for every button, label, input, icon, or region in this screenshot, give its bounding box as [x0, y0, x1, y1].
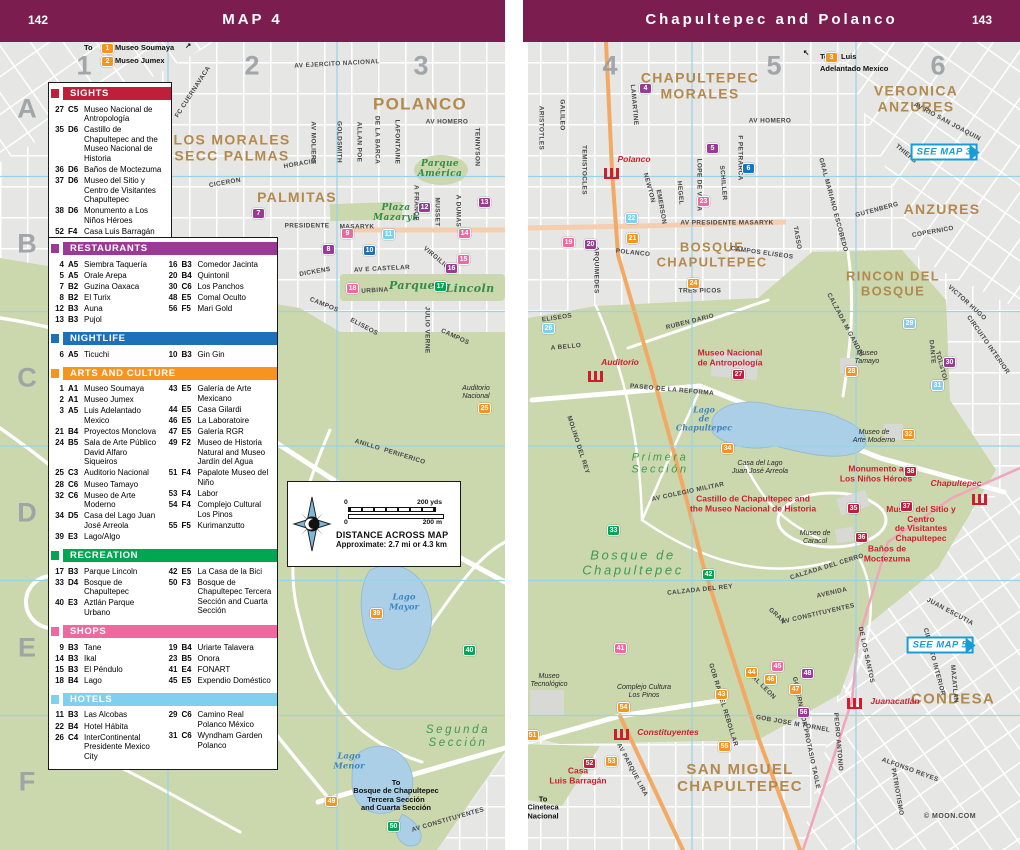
- see-map-link: SEE MAP 5: [907, 637, 974, 654]
- street-label: ALFONSO REYES: [881, 756, 940, 783]
- legend-sights-box: SIGHTS27C5Museo Nacional de Antropología…: [48, 82, 172, 245]
- scale-approx: Approximate: 2.7 mi or 4.3 km: [336, 540, 456, 549]
- legend-item: 18B4Lago: [51, 676, 161, 686]
- park-label: Parque América: [418, 159, 463, 179]
- street-label: LAMARTINE: [629, 84, 640, 126]
- legend-item: 33D4Bosque de Chapultepec: [51, 578, 161, 597]
- legend-main-box: RESTAURANTS4A5Siembra Taquería5A5Orale A…: [48, 237, 278, 770]
- poi-marker-28: 28: [845, 366, 858, 377]
- street-label: PASEO DE LA REFORMA: [630, 383, 715, 397]
- street-label: PATRIOTISMO: [889, 768, 904, 816]
- street-label: ELISEOS: [349, 317, 379, 338]
- poi-marker-19: 19: [562, 237, 575, 248]
- metro-station-icon: [847, 698, 862, 709]
- sight-label: Monumento a Los Niños Héroes: [840, 464, 912, 483]
- street-label: A DUMAS: [454, 195, 461, 227]
- poi-marker-17: 17: [434, 281, 447, 292]
- scale-zero-yd: 0: [344, 499, 348, 506]
- neighborhood-label: RINCON DEL BOSQUE: [846, 269, 940, 298]
- legend-section-header-sight: SIGHTS: [63, 87, 171, 100]
- park-section-label: Bosque de Chapultepec: [582, 548, 684, 577]
- metro-station-icon: [604, 168, 619, 179]
- poi-marker-21: 21: [626, 233, 639, 244]
- legend-item: 24B5Sala de Arte Público David Alfaro Si…: [51, 438, 161, 467]
- poi-marker-44: 44: [745, 667, 758, 678]
- scale-zero-m: 0: [344, 519, 348, 526]
- poi-marker-16: 16: [445, 263, 458, 274]
- page-number-right: 143: [972, 13, 992, 27]
- street-label: EMERSON: [654, 189, 667, 225]
- legend-item: 25C3Auditorio Nacional: [51, 468, 161, 478]
- neighborhood-label: CONDESA: [911, 692, 995, 709]
- map-note: Museo Soumaya: [115, 44, 174, 52]
- legend-item: 1A1Museo Soumaya: [51, 384, 161, 394]
- legend-item: 53F4Labor: [165, 489, 275, 499]
- street-label: AV CONSTITUYENTES: [411, 806, 485, 834]
- street-label: AV HOMERO: [749, 117, 792, 124]
- street-label: LAFONTAINE: [393, 120, 400, 165]
- park-label: Lincoln: [446, 283, 495, 295]
- copyright-label: © MOON.COM: [924, 813, 976, 821]
- park-label: Parque: [389, 280, 435, 292]
- street-label: VICTOR HUGO: [946, 284, 987, 322]
- poi-marker-23: 23: [697, 196, 710, 207]
- poi-marker-50: 50: [387, 821, 400, 832]
- legend-item: 40E3Aztlán Parque Urbano: [51, 598, 161, 617]
- poi-marker-55: 55: [718, 741, 731, 752]
- street-label: HORACIO: [283, 158, 317, 171]
- street-label: HEGEL: [675, 181, 684, 206]
- legend-section-header-shop: SHOPS: [63, 625, 277, 638]
- museum-label: Museo de Arte Moderno: [853, 429, 895, 445]
- legend-item: 54F4Complejo Cultural Los Pinos: [165, 500, 275, 519]
- legend-item: 35D6Castillo de Chapultepec and the Muse…: [51, 125, 168, 163]
- legend-item: 26C4InterContinental Presidente Mexico C…: [51, 733, 161, 762]
- legend-section-chip: [51, 627, 59, 636]
- poi-marker-36: 36: [855, 532, 868, 543]
- legend-item: 20B4Quintonil: [165, 271, 275, 281]
- poi-marker-47: 47: [789, 684, 802, 695]
- street-label: POLANCO: [615, 248, 650, 259]
- neighborhood-label: VERONICA ANZURES: [874, 83, 958, 114]
- street-label: AV RIO SAN JOAQUIN: [912, 101, 982, 142]
- poi-marker-1: 1: [101, 43, 114, 54]
- legend-item: 22B4Hotel Hábita: [51, 722, 161, 732]
- street-label: AV E CASTELAR: [354, 264, 411, 274]
- street-label: GOB RAFAEL REBOLLAR: [707, 663, 739, 748]
- street-label: DANTE: [927, 340, 936, 365]
- legend-item: 9B3Tane: [51, 643, 161, 653]
- metro-station-icon: [614, 729, 629, 740]
- map-note: To Bosque de Chapultepec Tercera Sección…: [353, 779, 438, 813]
- poi-marker-53: 53: [605, 756, 618, 767]
- poi-marker-31: 31: [931, 380, 944, 391]
- poi-marker-7: 7: [252, 208, 265, 219]
- legend-item: 29C6Camino Real Polanco México: [165, 710, 275, 729]
- poi-marker-32: 32: [902, 429, 915, 440]
- street-label: AVENIDA: [816, 586, 848, 600]
- legend-item: 55F5Kurimanzutto: [165, 521, 275, 531]
- legend-section-header-hotel: HOTELS: [63, 693, 277, 706]
- legend-item: 23B5Onora: [165, 654, 275, 664]
- street-label: CICERON: [208, 177, 241, 190]
- poi-marker-4: 4: [639, 83, 652, 94]
- street-label: TRES PICOS: [679, 287, 722, 294]
- metro-station-label: Juanacatlán: [870, 697, 919, 707]
- page-gutter: [505, 0, 528, 850]
- street-label: DICKENS: [299, 266, 331, 279]
- street-label: ELISEOS: [541, 312, 572, 323]
- sight-label: Museo del Sitio y Centro de Visitantes C…: [872, 505, 971, 543]
- neighborhood-label: ANZURES: [904, 202, 981, 218]
- legend-section-chip: [51, 334, 59, 343]
- metro-station-label: Polanco: [617, 155, 650, 165]
- street-label: MOLINO DEL REY: [565, 415, 591, 475]
- legend-section-header-arts: ARTS AND CULTURE: [63, 367, 277, 380]
- legend-item: 39E3Lago/Algo: [51, 532, 161, 542]
- legend-item: 13B3Pujol: [51, 315, 161, 325]
- legend-section-chip: [51, 244, 59, 253]
- poi-marker-49: 49: [325, 796, 338, 807]
- legend-item: 41E4FONART: [165, 665, 275, 675]
- street-label: TASSO: [791, 226, 802, 250]
- street-label: ALLAN POE: [355, 122, 362, 163]
- scale-m: 200 m: [423, 519, 442, 526]
- park-section-label: Segunda Sección: [426, 724, 490, 750]
- street-label: AV MOLIERE: [309, 121, 316, 164]
- street-label: CAMPOS ELISEOS: [730, 245, 794, 261]
- legend-item: 2A1Museo Jumex: [51, 395, 161, 405]
- lake-label: Lago Menor: [333, 752, 364, 771]
- poi-marker-45: 45: [771, 661, 784, 672]
- poi-marker-34: 34: [721, 443, 734, 454]
- street-label: AV PARQUE LIRA: [615, 742, 649, 798]
- legend-item: 12B3Auna: [51, 304, 161, 314]
- poi-marker-33: 33: [607, 525, 620, 536]
- museum-label: Casa del Lago Juan José Arreola: [732, 460, 788, 476]
- poi-marker-39: 39: [370, 608, 383, 619]
- street-label: DE LA BARCA: [373, 116, 380, 164]
- poi-marker-27: 27: [732, 369, 745, 380]
- legend-item: 52F4Casa Luis Barragán: [51, 227, 168, 237]
- metro-station-label: Constituyentes: [637, 728, 698, 738]
- street-label: F PETRARCA: [736, 135, 743, 180]
- poi-marker-14: 14: [458, 228, 471, 239]
- legend-section-chip: [51, 89, 59, 98]
- scale-yd: 200 yds: [417, 499, 442, 506]
- legend-item: 51F4Papalote Museo del Niño: [165, 468, 275, 487]
- map-note: Luis: [841, 53, 856, 61]
- museum-label: Museo de Caracol: [800, 530, 831, 546]
- map-title: MAP 4: [0, 11, 505, 28]
- museum-label: Museo Tecnológico: [530, 673, 567, 689]
- poi-marker-20: 20: [584, 239, 597, 250]
- street-label: MUSSET: [433, 197, 440, 226]
- poi-marker-11: 11: [382, 229, 395, 240]
- street-label: CALZADA DEL CERRO: [789, 552, 864, 581]
- legend-item: 45E5Expendio Doméstico: [165, 676, 275, 686]
- street-label: GALILEO: [558, 99, 565, 130]
- street-label: PEDRO ANTONIO: [832, 712, 844, 771]
- street-label: GRAN: [767, 607, 787, 626]
- legend-item: 56F5Mari Gold: [165, 304, 275, 314]
- legend-item: 36D6Baños de Moctezuma: [51, 165, 168, 175]
- street-label: ANILLO PERIFERICO: [354, 438, 426, 466]
- legend-item: 46E5La Laboratoire: [165, 416, 275, 426]
- poi-marker-18: 18: [346, 283, 359, 294]
- poi-marker-8: 8: [322, 244, 335, 255]
- street-label: CALZADA DEL REY: [667, 583, 733, 597]
- street-label: AV COLEGIO MILITAR: [651, 481, 725, 503]
- poi-marker-42: 42: [702, 569, 715, 580]
- poi-marker-29: 29: [903, 318, 916, 329]
- legend-item: 4A5Siembra Taquería: [51, 260, 161, 270]
- poi-marker-54: 54: [617, 702, 630, 713]
- legend-item: 6A5Ticuchi: [51, 350, 161, 360]
- legend-item: 48E5Comal Oculto: [165, 293, 275, 303]
- header-bar-left: 142 MAP 4: [0, 0, 505, 42]
- legend-item: 42E5La Casa de la Bici: [165, 567, 275, 577]
- see-map-link: SEE MAP 3: [911, 144, 978, 161]
- legend-item: 50F3Bosque de Chapultepec Tercera Secció…: [165, 578, 275, 616]
- poi-marker-25: 25: [478, 403, 491, 414]
- street-label: AV HOMERO: [426, 118, 469, 125]
- legend-section-header-nightlife: NIGHTLIFE: [63, 332, 277, 345]
- legend-item: 27C5Museo Nacional de Antropología: [51, 105, 168, 124]
- sight-label: Baños de Moctezuma: [864, 544, 910, 563]
- street-label: ARQUIMEDES: [592, 246, 599, 293]
- street-label: NEWTON: [642, 172, 657, 203]
- map-note: To: [84, 44, 93, 52]
- neighborhood-label: PALMITAS: [257, 190, 337, 206]
- sight-label: Castillo de Chapultepec and the Museo Na…: [690, 494, 816, 513]
- poi-marker-3: 3: [825, 52, 838, 63]
- legend-section-header-restaurant: RESTAURANTS: [63, 242, 277, 255]
- street-label: CALZADA M GANDHI: [825, 292, 865, 358]
- poi-marker-9: 9: [341, 228, 354, 239]
- park-section-label: Primera Sección: [631, 452, 688, 477]
- poi-marker-2: 2: [101, 56, 114, 67]
- metro-station-label: Chapultepec: [930, 479, 981, 489]
- metro-station-icon: [972, 494, 987, 505]
- legend-item: 44E5Casa Gilardi: [165, 405, 275, 415]
- legend-item: 14B3Ikal: [51, 654, 161, 664]
- street-label: TENNYSON: [473, 128, 480, 167]
- scale-bar-yards: [348, 507, 436, 512]
- street-label: GUTENBERG: [855, 201, 900, 219]
- sight-label: Museo Nacional de Antropología: [698, 348, 763, 367]
- street-label: SCHILLER: [718, 165, 728, 201]
- poi-marker-12: 12: [418, 202, 431, 213]
- street-label: GRAL MARIANO ESCOBEDO: [817, 157, 849, 253]
- neighborhood-label: LOS MORALES SECC PALMAS: [174, 132, 291, 163]
- poi-marker-56: 56: [797, 707, 810, 718]
- street-label: RUBEN DARIO: [665, 313, 715, 332]
- legend-item: 7B2Guzina Oaxaca: [51, 282, 161, 292]
- header-bar-right: Chapultepec and Polanco 143: [523, 0, 1020, 42]
- poi-marker-15: 15: [457, 254, 470, 265]
- museum-label: Auditorio Nacional: [462, 385, 490, 401]
- neighborhood-label: SAN MIGUEL CHAPULTEPEC: [677, 762, 803, 796]
- street-label: CIRCUITO INTERIOR: [965, 314, 1011, 375]
- street-label: JULIO VERNE: [423, 306, 430, 353]
- street-label: GOB JOSE M TORNEL: [755, 714, 830, 734]
- poi-marker-6: 6: [742, 163, 755, 174]
- legend-item: 37D6Museo del Sitio y Centro de Visitant…: [51, 176, 168, 205]
- poi-marker-48: 48: [801, 668, 814, 679]
- legend-section-chip: [51, 369, 59, 378]
- legend-item: 32C6Museo de Arte Moderno: [51, 491, 161, 510]
- legend-item: 28C6Museo Tamayo: [51, 480, 161, 490]
- museum-label: Complejo Cultura Los Pinos: [617, 684, 671, 700]
- legend-item: 19B4Uriarte Talavera: [165, 643, 275, 653]
- street-label: JUAN ESCUTIA: [925, 597, 974, 628]
- street-label: CAMPOS: [440, 327, 471, 346]
- street-label: ARISTOTLES: [537, 106, 544, 150]
- street-label: TEMISTOCLES: [580, 145, 587, 195]
- street-label: AV EJERCITO NACIONAL: [294, 58, 380, 70]
- legend-item: 38D6Monumento a Los Niños Héroes: [51, 206, 168, 225]
- poi-marker-26: 26: [542, 323, 555, 334]
- street-label: CAMPOS: [309, 296, 340, 314]
- poi-marker-46: 46: [764, 674, 777, 685]
- map-note: ↗: [185, 42, 191, 50]
- poi-marker-24: 24: [687, 278, 700, 289]
- poi-marker-43: 43: [715, 689, 728, 700]
- poi-marker-10: 10: [363, 245, 376, 256]
- map-page: 123456ABCDEF POLANCOLOS MORALES SECC PAL…: [0, 0, 1020, 850]
- legend-item: 11B3Las Alcobas: [51, 710, 161, 720]
- map-note: ↖: [803, 49, 809, 57]
- legend-section-header-recreation: RECREATION: [63, 549, 277, 562]
- street-label: A BELLO: [550, 342, 581, 352]
- poi-marker-30: 30: [943, 357, 956, 368]
- scale-title: DISTANCE ACROSS MAP: [336, 530, 456, 540]
- street-label: GOLDSMITH: [335, 121, 342, 163]
- legend-item: 5A5Orale Arepa: [51, 271, 161, 281]
- poi-marker-13: 13: [478, 197, 491, 208]
- legend-section-chip: [51, 695, 59, 704]
- poi-marker-35: 35: [847, 503, 860, 514]
- legend-item: 47E5Galería RGR: [165, 427, 275, 437]
- street-label: FC CUERNAVACA: [174, 65, 213, 119]
- map-note: Adelantado Mexico: [820, 65, 888, 73]
- compass-rose-icon: [292, 495, 332, 553]
- street-label: AV PRESIDENTE MASARYK: [680, 219, 773, 226]
- poi-marker-37: 37: [900, 501, 913, 512]
- sight-label: Casa Luis Barragán: [549, 766, 606, 785]
- legend-item: 34D5Casa del Lago Juan José Arreola: [51, 511, 161, 530]
- map-note: Museo Jumex: [115, 57, 165, 65]
- legend-section-chip: [51, 551, 59, 560]
- street-label: COPERNICO: [912, 225, 955, 239]
- street-label: MAZATLÁN: [949, 665, 959, 704]
- poi-marker-52: 52: [583, 758, 596, 769]
- neighborhood-label: BOSQUE CHAPULTEPEC: [657, 240, 768, 269]
- legend-item: 43E5Galería de Arte Mexicano: [165, 384, 275, 403]
- museum-label: Museo Tamayo: [855, 350, 880, 366]
- legend-item: 17B3Parque Lincoln: [51, 567, 161, 577]
- poi-marker-40: 40: [463, 645, 476, 656]
- legend-item: 10B3Gin Gin: [165, 350, 275, 360]
- metro-station-label: Auditorio: [601, 358, 639, 368]
- lake-label: Lago Mayor: [389, 593, 419, 612]
- legend-item: 21B4Proyectos Monclova: [51, 427, 161, 437]
- legend-item: 15B3El Péndulo: [51, 665, 161, 675]
- legend-item: 8B2El Turix: [51, 293, 161, 303]
- neighborhood-label: POLANCO: [373, 94, 467, 113]
- poi-marker-22: 22: [625, 213, 638, 224]
- metro-station-icon: [588, 371, 603, 382]
- legend-item: 30C6Los Panchos: [165, 282, 275, 292]
- legend-item: 3A5Luis Adelantado Mexico: [51, 406, 161, 425]
- poi-marker-41: 41: [614, 643, 627, 654]
- legend-item: 16B3Comedor Jacinta: [165, 260, 275, 270]
- map-note: To Cineteca Nacional: [527, 795, 558, 820]
- neighborhood-label: CHAPULTEPEC MORALES: [641, 70, 759, 101]
- poi-marker-38: 38: [904, 466, 917, 477]
- map-subtitle: Chapultepec and Polanco: [523, 11, 1020, 28]
- street-label: PRESIDENTE: [285, 222, 330, 229]
- poi-marker-5: 5: [706, 143, 719, 154]
- lake-label: Lago de Chapultepec: [676, 406, 732, 433]
- park-label: Plaza Mazaryk: [373, 203, 419, 223]
- legend-item: 31C6Wyndham Garden Polanco: [165, 731, 275, 750]
- street-label: AV CONSTITUYENTES: [781, 602, 856, 626]
- scale-box: 0200 yds 0200 m DISTANCE ACROSS MAP Appr…: [287, 481, 461, 567]
- street-label: DE LOS SANTOS: [857, 626, 876, 684]
- legend-item: 49F2Museo de Historia Natural and Museo …: [165, 438, 275, 467]
